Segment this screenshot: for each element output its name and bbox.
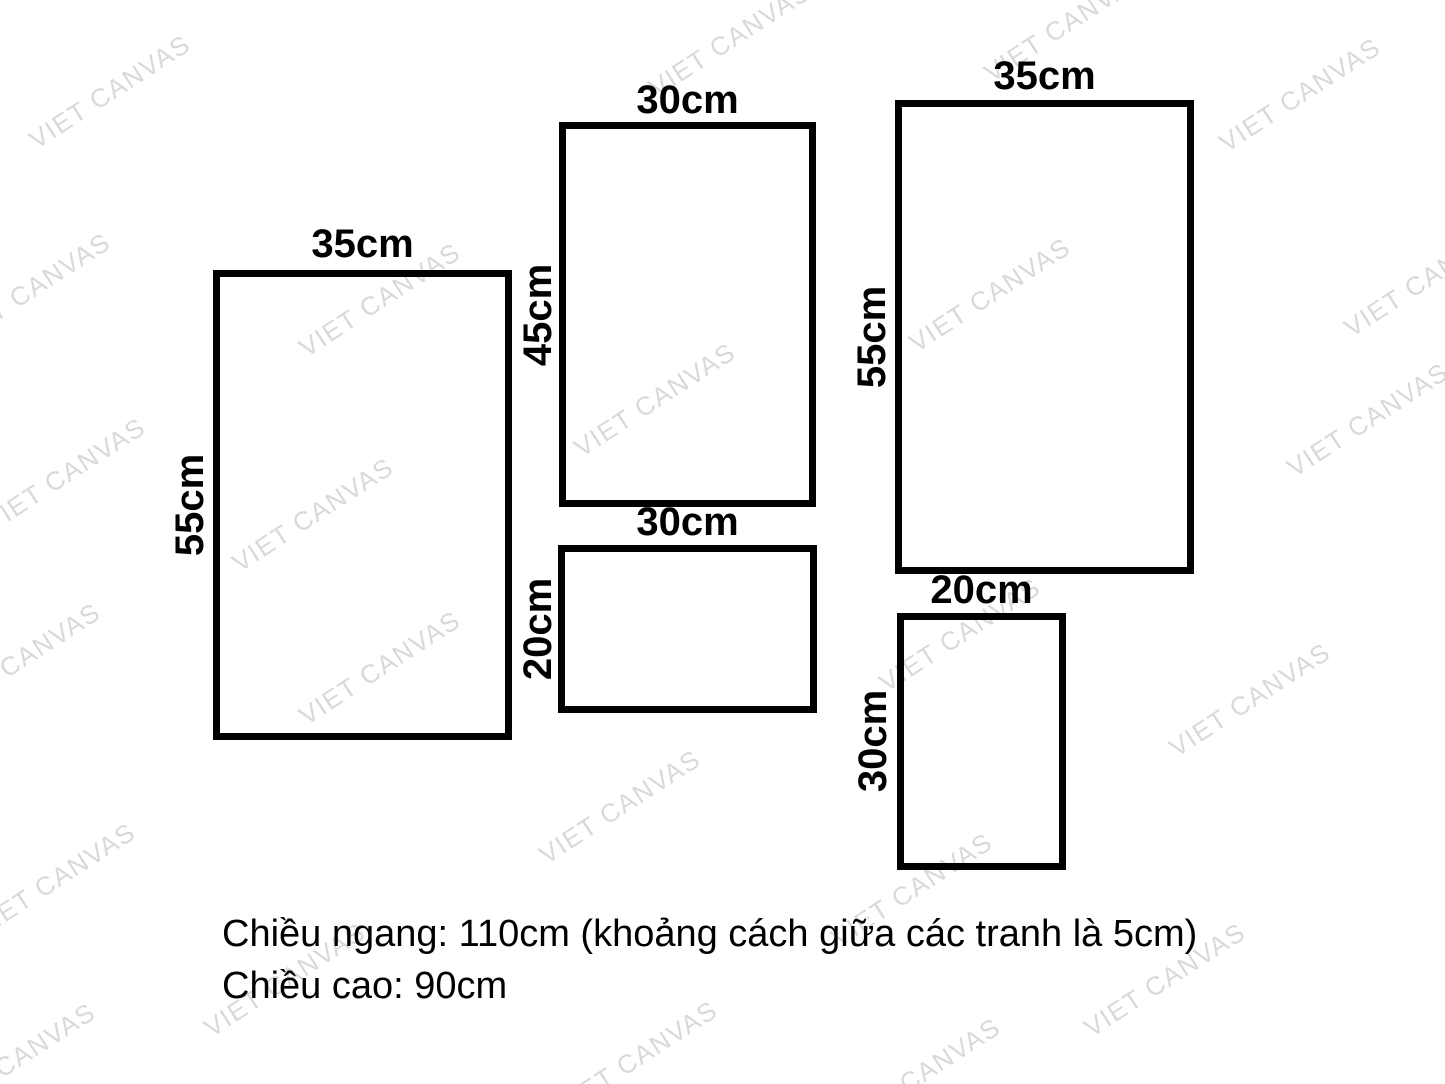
- frame-top-middle-height-label: 45cm: [518, 264, 558, 366]
- watermark-text: VIET CANVAS: [1282, 356, 1445, 483]
- watermark-text: VIET CANVAS: [534, 743, 707, 870]
- frame-left-large-height-label: 55cm: [170, 454, 210, 556]
- watermark-text: VIET CANVAS: [834, 1011, 1007, 1084]
- watermark-text: VIET CANVAS: [0, 411, 151, 538]
- frame-top-right: [895, 100, 1194, 574]
- gallery-wall-layout-diagram: VIET CANVASVIET CANVASVIET CANVASVIET CA…: [0, 0, 1445, 1084]
- watermark-text: VIET CANVAS: [1164, 636, 1337, 763]
- watermark-text: VIET CANVAS: [0, 226, 116, 353]
- frame-top-right-height-label: 55cm: [852, 286, 892, 388]
- frame-bottom-middle-height-label: 20cm: [518, 578, 558, 680]
- note-vertical-dimension: Chiều cao: 90cm: [222, 960, 1197, 1012]
- watermark-text: VIET CANVAS: [0, 996, 101, 1084]
- frame-top-middle: [559, 122, 816, 507]
- frame-bottom-right-width-label: 20cm: [897, 568, 1066, 612]
- watermark-text: VIET CANVAS: [0, 816, 141, 943]
- frame-left-large-width-label: 35cm: [213, 222, 512, 266]
- frame-bottom-middle: [558, 545, 817, 713]
- frame-top-middle-width-label: 30cm: [559, 78, 816, 122]
- watermark-text: VIET CANVAS: [1339, 216, 1445, 343]
- frame-bottom-right-height-label: 30cm: [853, 690, 893, 792]
- dimension-notes: Chiều ngang: 110cm (khoảng cách giữa các…: [222, 908, 1197, 1012]
- frame-left-large: [213, 270, 512, 740]
- watermark-text: VIET CANVAS: [24, 28, 197, 155]
- note-horizontal-dimension: Chiều ngang: 110cm (khoảng cách giữa các…: [222, 908, 1197, 960]
- frame-top-right-width-label: 35cm: [895, 54, 1194, 98]
- watermark-text: VIET CANVAS: [1214, 31, 1387, 158]
- frame-bottom-middle-width-label: 30cm: [558, 500, 817, 544]
- watermark-text: VIET CANVAS: [0, 596, 106, 723]
- frame-bottom-right: [897, 613, 1066, 870]
